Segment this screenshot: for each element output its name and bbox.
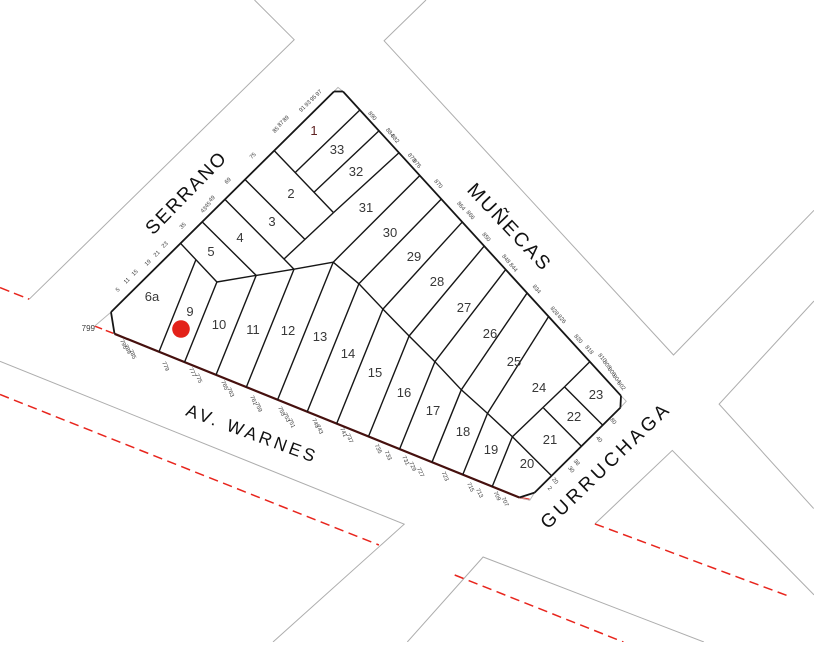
svg-text:21: 21 — [543, 432, 557, 447]
svg-text:19: 19 — [484, 442, 498, 457]
svg-text:15: 15 — [368, 365, 382, 380]
svg-text:799: 799 — [82, 324, 96, 333]
svg-text:11: 11 — [246, 322, 260, 337]
svg-text:32: 32 — [349, 164, 363, 179]
svg-text:9: 9 — [186, 304, 193, 319]
svg-text:25: 25 — [507, 354, 521, 369]
svg-text:33: 33 — [330, 142, 344, 157]
svg-text:5: 5 — [207, 244, 214, 259]
svg-text:26: 26 — [483, 326, 497, 341]
svg-text:1: 1 — [310, 123, 317, 138]
svg-text:14: 14 — [341, 346, 355, 361]
svg-text:20: 20 — [520, 456, 534, 471]
svg-text:6a: 6a — [145, 289, 160, 304]
svg-text:23: 23 — [589, 387, 603, 402]
svg-text:29: 29 — [407, 249, 421, 264]
svg-text:10: 10 — [212, 317, 226, 332]
svg-text:30: 30 — [383, 225, 397, 240]
svg-text:24: 24 — [532, 380, 546, 395]
svg-text:16: 16 — [397, 385, 411, 400]
svg-text:4: 4 — [236, 230, 243, 245]
svg-text:18: 18 — [456, 424, 470, 439]
svg-text:13: 13 — [313, 329, 327, 344]
svg-text:3: 3 — [268, 214, 275, 229]
svg-text:27: 27 — [457, 300, 471, 315]
svg-text:12: 12 — [281, 323, 295, 338]
svg-text:31: 31 — [359, 200, 373, 215]
svg-text:22: 22 — [567, 409, 581, 424]
svg-text:17: 17 — [426, 403, 440, 418]
svg-text:2: 2 — [287, 186, 294, 201]
svg-text:28: 28 — [430, 274, 444, 289]
